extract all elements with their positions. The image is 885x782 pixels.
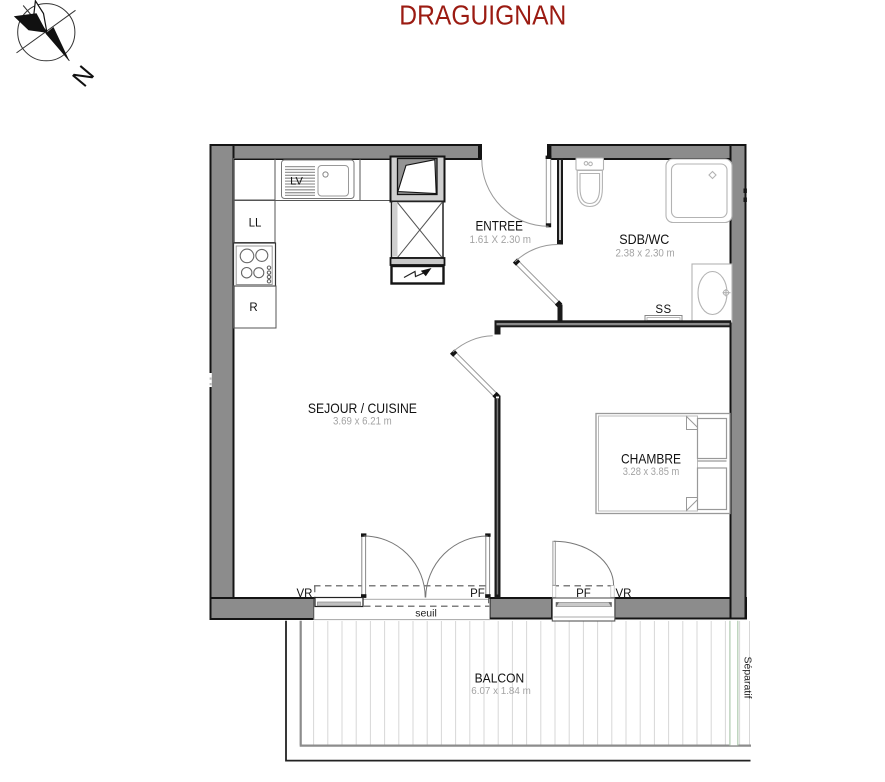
svg-text:SDB/WC: SDB/WC bbox=[619, 231, 669, 247]
svg-text:LL: LL bbox=[249, 218, 262, 230]
svg-text:SEJOUR / CUISINE: SEJOUR / CUISINE bbox=[308, 400, 417, 416]
svg-text:VR: VR bbox=[297, 588, 313, 600]
svg-text:2.38 x 2.30 m: 2.38 x 2.30 m bbox=[616, 248, 675, 260]
svg-text:ENTREE: ENTREE bbox=[475, 218, 523, 234]
svg-text:PF: PF bbox=[576, 588, 591, 600]
svg-text:BALCON: BALCON bbox=[475, 672, 525, 686]
svg-text:R: R bbox=[249, 302, 257, 314]
svg-text:3.28 x 3.85 m: 3.28 x 3.85 m bbox=[623, 466, 680, 478]
svg-text:CHAMBRE: CHAMBRE bbox=[621, 451, 681, 467]
svg-text:1.61 X 2.30 m: 1.61 X 2.30 m bbox=[470, 234, 532, 246]
svg-text:6.07 x 1.84 m: 6.07 x 1.84 m bbox=[471, 686, 531, 697]
svg-text:DRAGUIGNAN: DRAGUIGNAN bbox=[399, 0, 566, 31]
svg-text:seuil: seuil bbox=[415, 608, 437, 620]
svg-text:LV: LV bbox=[290, 176, 303, 188]
svg-text:3.69 x 6.21 m: 3.69 x 6.21 m bbox=[333, 416, 392, 428]
svg-text:SS: SS bbox=[655, 304, 671, 316]
svg-text:VR: VR bbox=[616, 588, 632, 600]
svg-text:PF: PF bbox=[470, 588, 485, 600]
svg-text:Séparatif: Séparatif bbox=[742, 656, 754, 698]
